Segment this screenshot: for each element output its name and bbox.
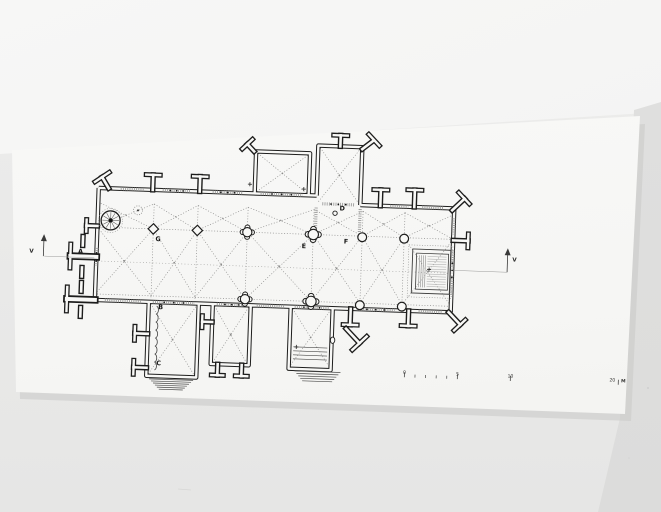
speck bbox=[647, 387, 649, 389]
section-marker-right: V bbox=[454, 246, 518, 272]
scale-bar: 0 5 10 20 M bbox=[403, 370, 626, 385]
label-f: F bbox=[344, 238, 349, 246]
scale-tick-label-20: 20 bbox=[609, 377, 615, 383]
scale-tick-label-10: 10 bbox=[507, 373, 513, 379]
section-arrowhead-icon bbox=[505, 248, 511, 255]
floor-plan: A B C D E F G + + + + V V bbox=[25, 123, 635, 406]
buttresses bbox=[64, 124, 471, 386]
section-line-right bbox=[454, 270, 507, 272]
cross-mark-altar: + bbox=[426, 265, 432, 273]
section-label-left: V bbox=[29, 249, 34, 255]
speck bbox=[178, 489, 191, 490]
scale-tick-label-0: 0 bbox=[403, 370, 406, 376]
floor-plan-svg: A B C D E F G + + + + V V bbox=[0, 0, 661, 512]
cross-mark-north-aisle: + bbox=[247, 180, 253, 188]
section-arrowhead-icon bbox=[41, 234, 47, 241]
label-a: A bbox=[78, 247, 83, 255]
label-b: B bbox=[158, 303, 163, 311]
scale-tick-label-5: 5 bbox=[456, 372, 459, 378]
arcade-piers bbox=[146, 221, 409, 313]
label-d: D bbox=[339, 204, 345, 212]
speck bbox=[628, 457, 630, 459]
label-g: G bbox=[155, 235, 161, 243]
section-arrow-icon bbox=[507, 253, 508, 272]
label-e: E bbox=[302, 242, 307, 250]
label-c: C bbox=[156, 359, 161, 367]
cross-mark-north-chapel: + bbox=[301, 185, 307, 193]
section-label-right: V bbox=[512, 257, 517, 263]
scale-unit-label: M bbox=[621, 378, 626, 384]
cross-mark-south-porch: + bbox=[293, 343, 299, 351]
section-arrow-icon bbox=[43, 239, 44, 256]
surface-specks bbox=[178, 387, 649, 490]
